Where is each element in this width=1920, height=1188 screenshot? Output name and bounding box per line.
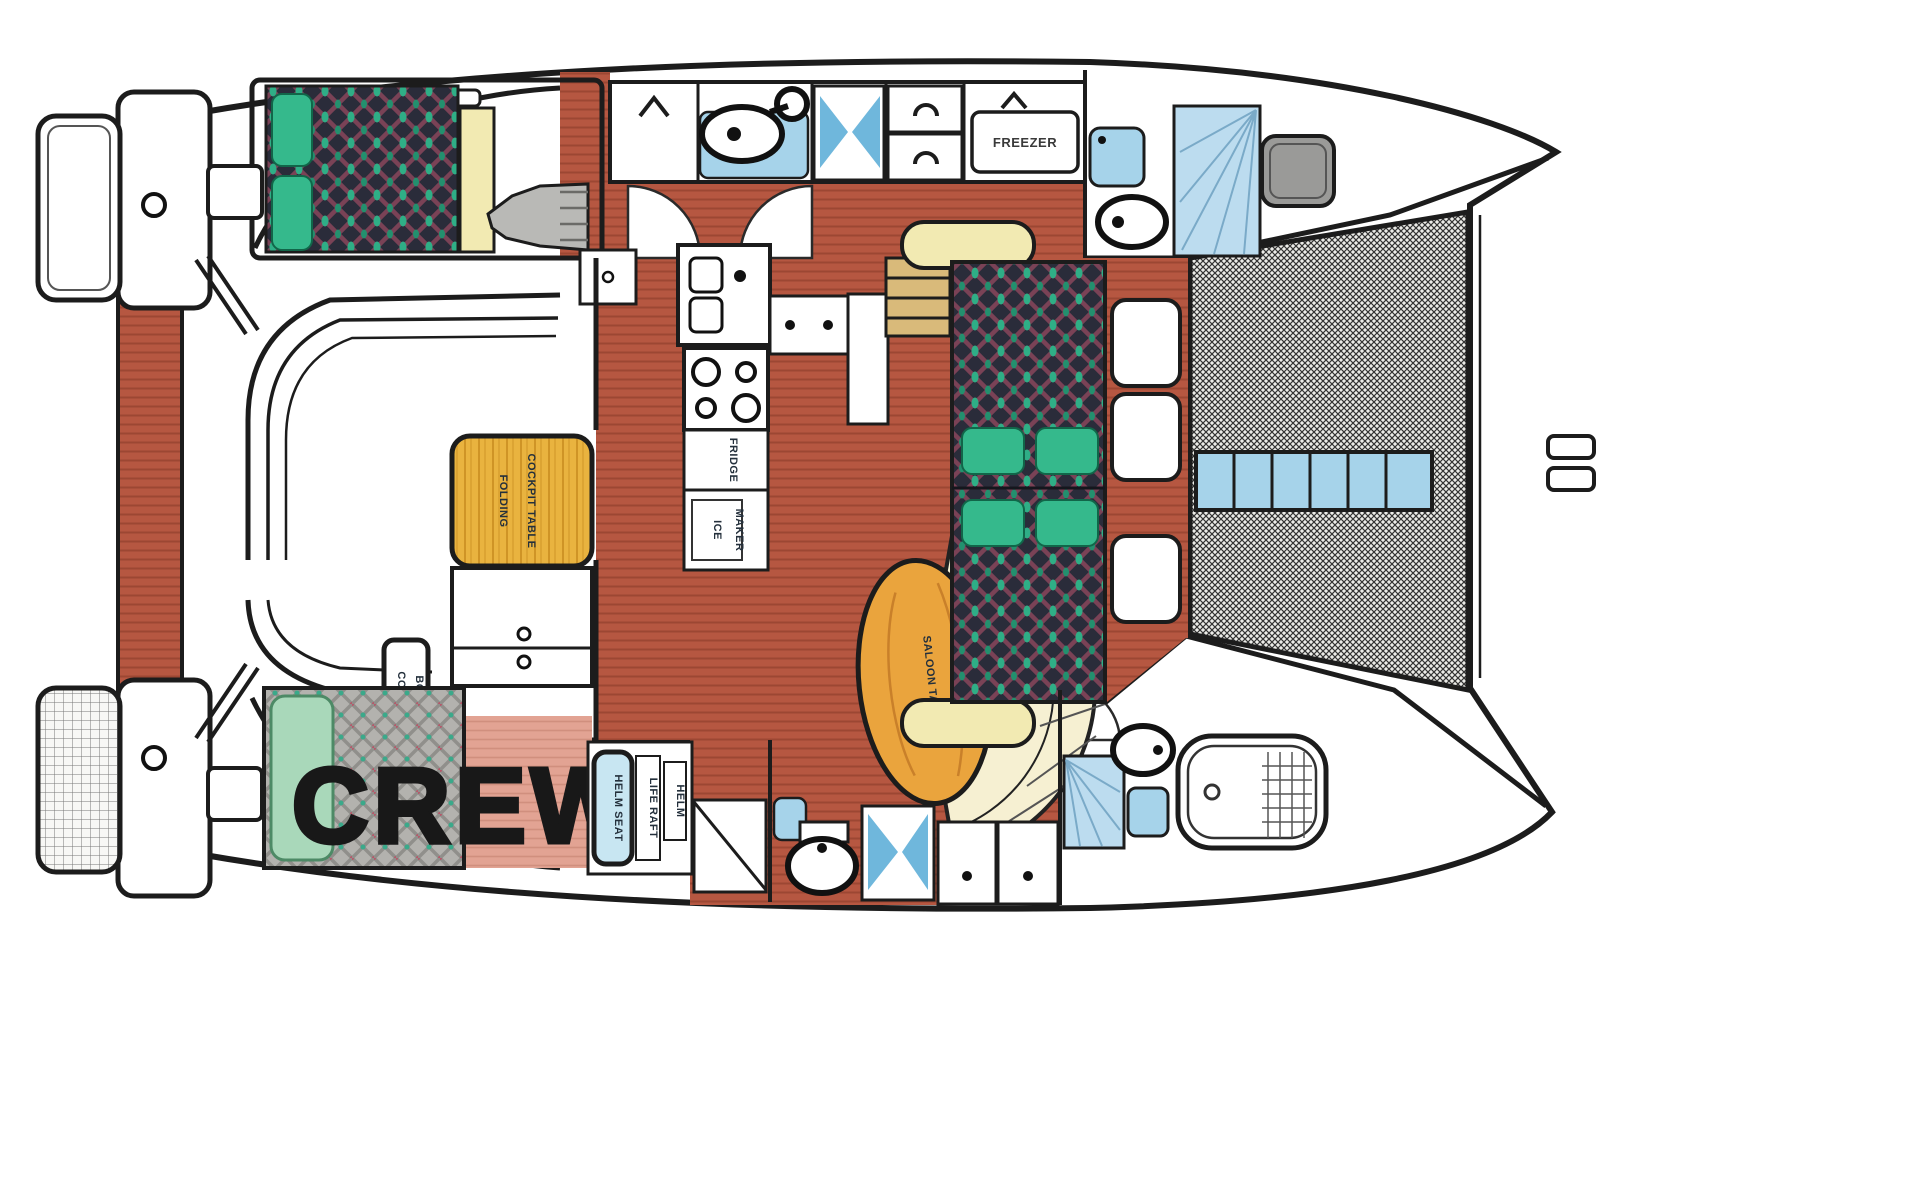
shower-stall — [814, 86, 884, 180]
freezer-label: FREEZER — [993, 135, 1057, 150]
faucet-icon — [734, 270, 746, 282]
sink-basin-icon — [702, 107, 782, 161]
headboard-shelf — [902, 700, 1034, 746]
step-box — [208, 166, 262, 218]
life-raft-label: LIFE RAFT — [647, 778, 659, 839]
catamaran-floorplan: FREEZER FRIDGE — [0, 0, 1920, 1188]
toilet-icon — [1113, 726, 1173, 774]
pillow — [1036, 500, 1098, 546]
double-berth — [952, 262, 1105, 702]
pillow — [272, 176, 312, 250]
partition — [848, 294, 888, 424]
lockers — [888, 86, 962, 180]
bowsprit-fitting — [1548, 468, 1594, 490]
pillow — [962, 428, 1024, 474]
galley-cabinet — [580, 250, 636, 304]
aft-beam-boarding — [118, 246, 182, 702]
aft-platforms — [38, 92, 262, 896]
cockpit-table: FOLDING COCKPIT TABLE — [452, 436, 592, 566]
port-hull-top-band: FREEZER — [610, 82, 1085, 182]
hinge-icon — [518, 656, 530, 668]
shower-stall — [1064, 756, 1124, 848]
locker — [938, 822, 996, 904]
ice-maker: ICE MAKER — [684, 490, 768, 570]
shower-stall — [862, 806, 934, 900]
fridge-label: FRIDGE — [727, 438, 739, 483]
step-box — [208, 768, 262, 820]
drain-icon — [727, 127, 741, 141]
cockpit-locker — [452, 568, 592, 686]
port-forward-head — [1085, 70, 1334, 258]
hinge-icon — [518, 628, 530, 640]
cleat-icon — [143, 194, 165, 216]
pillow — [1036, 428, 1098, 474]
stove — [684, 348, 768, 430]
fridge: FRIDGE — [684, 430, 768, 490]
faucet-icon — [777, 89, 807, 119]
swim-platform — [38, 688, 120, 872]
nav-cabinet — [770, 296, 848, 354]
trampoline — [1190, 212, 1468, 690]
ice-maker-label-line1: ICE — [711, 520, 723, 540]
swim-platform — [38, 116, 120, 300]
cockpit-table-label-line2: COCKPIT TABLE — [525, 454, 537, 549]
cockpit-table-label-line1: FOLDING — [497, 475, 509, 528]
pillow — [962, 500, 1024, 546]
foredeck-hatches — [1112, 300, 1180, 622]
deck-hatch — [1112, 300, 1180, 386]
cleat-icon — [143, 747, 165, 769]
helm-station: HELM SEAT LIFE RAFT HELM — [588, 742, 692, 874]
trampoline-walkway — [1196, 452, 1432, 510]
deck-hatch — [1112, 394, 1180, 480]
cockpit: FOLDING COCKPIT TABLE COLD BOX — [248, 295, 592, 738]
transom-steps — [118, 680, 210, 896]
bowsprit-fitting — [1548, 436, 1594, 458]
crew-label: CREW — [292, 747, 636, 865]
shower-stall — [1174, 106, 1260, 256]
sink — [1090, 128, 1144, 186]
toilet-icon — [1098, 197, 1166, 247]
port-aft-cabin — [252, 80, 602, 258]
helm-seat-label: HELM SEAT — [612, 774, 624, 841]
bathtub — [1178, 736, 1326, 848]
crew-cabin: CREW — [264, 688, 636, 868]
deck-hatch — [1112, 536, 1180, 622]
ice-maker-label-line2: MAKER — [733, 509, 745, 552]
helm-label: HELM — [674, 784, 686, 817]
pillow — [272, 94, 312, 166]
stbd-forward-head — [1064, 726, 1326, 848]
sink — [1128, 788, 1168, 836]
locker — [998, 822, 1058, 904]
shelf — [460, 108, 494, 252]
